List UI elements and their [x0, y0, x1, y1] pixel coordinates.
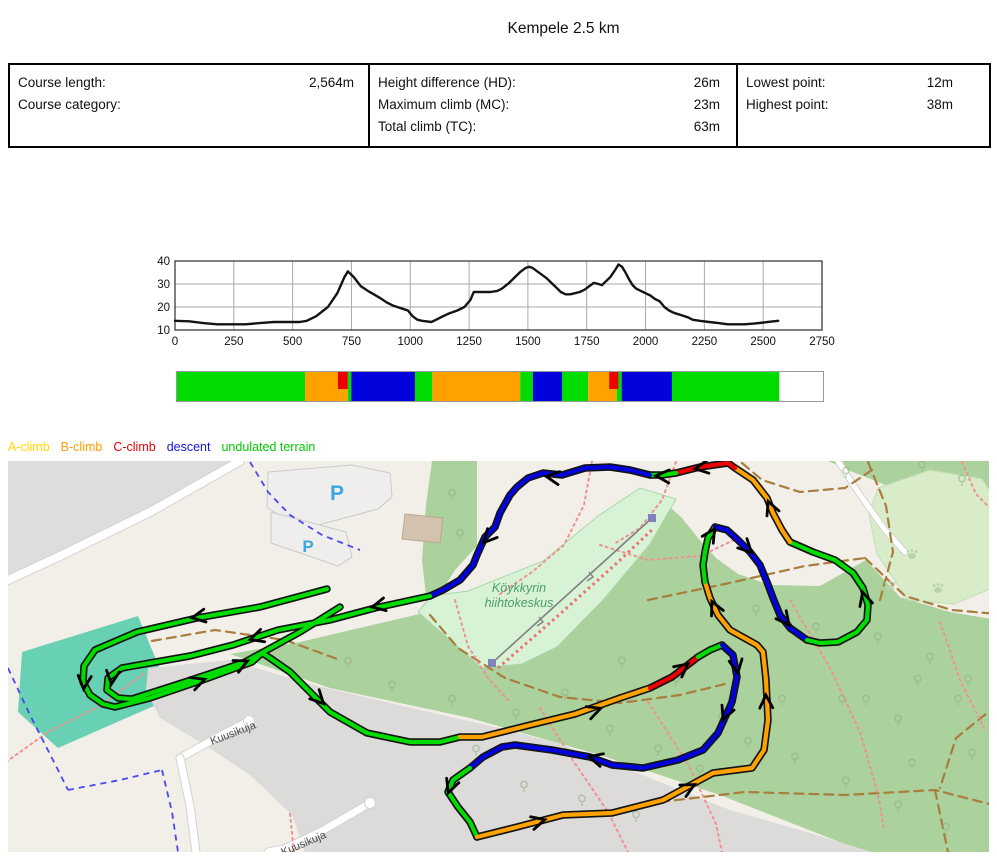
x-tick-label: 1000: [397, 336, 423, 348]
info-value: 12m: [927, 72, 989, 94]
bar-segment-undulated: [520, 372, 533, 401]
bar-segment-undulated: [415, 372, 432, 401]
x-tick-label: 0: [172, 336, 178, 348]
y-tick-label: 20: [157, 302, 170, 314]
legend-item: B-climb: [61, 440, 103, 454]
course-info-table: Course length:2,564mCourse category: Hei…: [8, 63, 991, 148]
ski-center-label: Köykkyrin: [492, 581, 546, 595]
climb-classification-bar: [176, 371, 824, 402]
lift-station-icon: [488, 659, 496, 667]
info-label: Lowest point:: [738, 72, 826, 94]
info-row: Maximum climb (MC):23m: [370, 94, 736, 116]
info-value: [354, 94, 368, 116]
x-tick-label: 500: [283, 336, 302, 348]
info-row: Course length:2,564m: [10, 72, 368, 94]
elevation-profile-chart: 1020304002505007501000125015001750200022…: [146, 252, 836, 352]
info-value: 38m: [927, 94, 989, 116]
info-value: 26m: [694, 72, 736, 94]
y-tick-label: 40: [157, 256, 170, 268]
climb-legend: A-climbB-climbC-climbdescentundulated te…: [8, 440, 326, 454]
x-tick-label: 2500: [750, 336, 776, 348]
info-label: Course length:: [10, 72, 106, 94]
info-row: Highest point:38m: [738, 94, 989, 116]
info-value: 23m: [694, 94, 736, 116]
ski-center-label: hiihtokeskus: [485, 596, 554, 610]
page-title: Kempele 2.5 km: [0, 20, 997, 38]
info-label: Total climb (TC):: [370, 116, 476, 138]
x-tick-label: 2250: [692, 336, 718, 348]
info-row: Height difference (HD):26m: [370, 72, 736, 94]
info-column-length: Course length:2,564mCourse category:: [10, 65, 368, 146]
info-value: 2,564m: [309, 72, 368, 94]
lift-station-icon: [648, 514, 656, 522]
x-tick-label: 2750: [809, 336, 835, 348]
x-tick-label: 250: [224, 336, 243, 348]
bar-segment-C: [338, 372, 348, 389]
bar-segment-descent: [351, 372, 415, 401]
bar-segment-C: [609, 372, 618, 389]
x-tick-label: 1500: [515, 336, 541, 348]
bar-segment-undulated: [348, 372, 352, 401]
info-row: Course category:: [10, 94, 368, 116]
elevation-line: [175, 265, 778, 325]
legend-item: undulated terrain: [221, 440, 315, 454]
bar-segment-B: [432, 372, 520, 401]
bar-segment-undulated: [672, 372, 779, 401]
legend-item: descent: [167, 440, 211, 454]
course-map: KöykkyrinhiihtokeskusKuusikujaKuusikujaP…: [8, 461, 989, 852]
x-tick-label: 1750: [574, 336, 600, 348]
street-culdesac-culdesac: [365, 798, 376, 809]
legend-item: A-climb: [8, 440, 50, 454]
plot-border: [175, 261, 822, 330]
y-tick-label: 30: [157, 279, 170, 291]
course-report-page: Kempele 2.5 km Course length:2,564mCours…: [0, 0, 997, 860]
bar-segment-descent: [622, 372, 672, 401]
bar-segment-undulated: [562, 372, 588, 401]
info-value: 63m: [694, 116, 736, 138]
bar-segment-descent: [533, 372, 562, 401]
y-tick-label: 10: [157, 325, 170, 337]
x-tick-label: 750: [342, 336, 361, 348]
legend-item: C-climb: [113, 440, 155, 454]
info-label: Course category:: [10, 94, 121, 116]
info-column-climb: Height difference (HD):26mMaximum climb …: [368, 65, 736, 146]
info-column-points: Lowest point:12mHighest point:38m: [736, 65, 989, 146]
info-label: Highest point:: [738, 94, 829, 116]
x-tick-label: 2000: [633, 336, 659, 348]
bar-segment-undulated: [177, 372, 305, 401]
info-label: Maximum climb (MC):: [370, 94, 509, 116]
info-label: Height difference (HD):: [370, 72, 516, 94]
info-row: Lowest point:12m: [738, 72, 989, 94]
parking-icon: P: [302, 537, 313, 556]
x-tick-label: 1250: [456, 336, 482, 348]
building: [402, 514, 443, 543]
parking-icon: P: [330, 482, 344, 505]
info-row: Total climb (TC):63m: [370, 116, 736, 138]
